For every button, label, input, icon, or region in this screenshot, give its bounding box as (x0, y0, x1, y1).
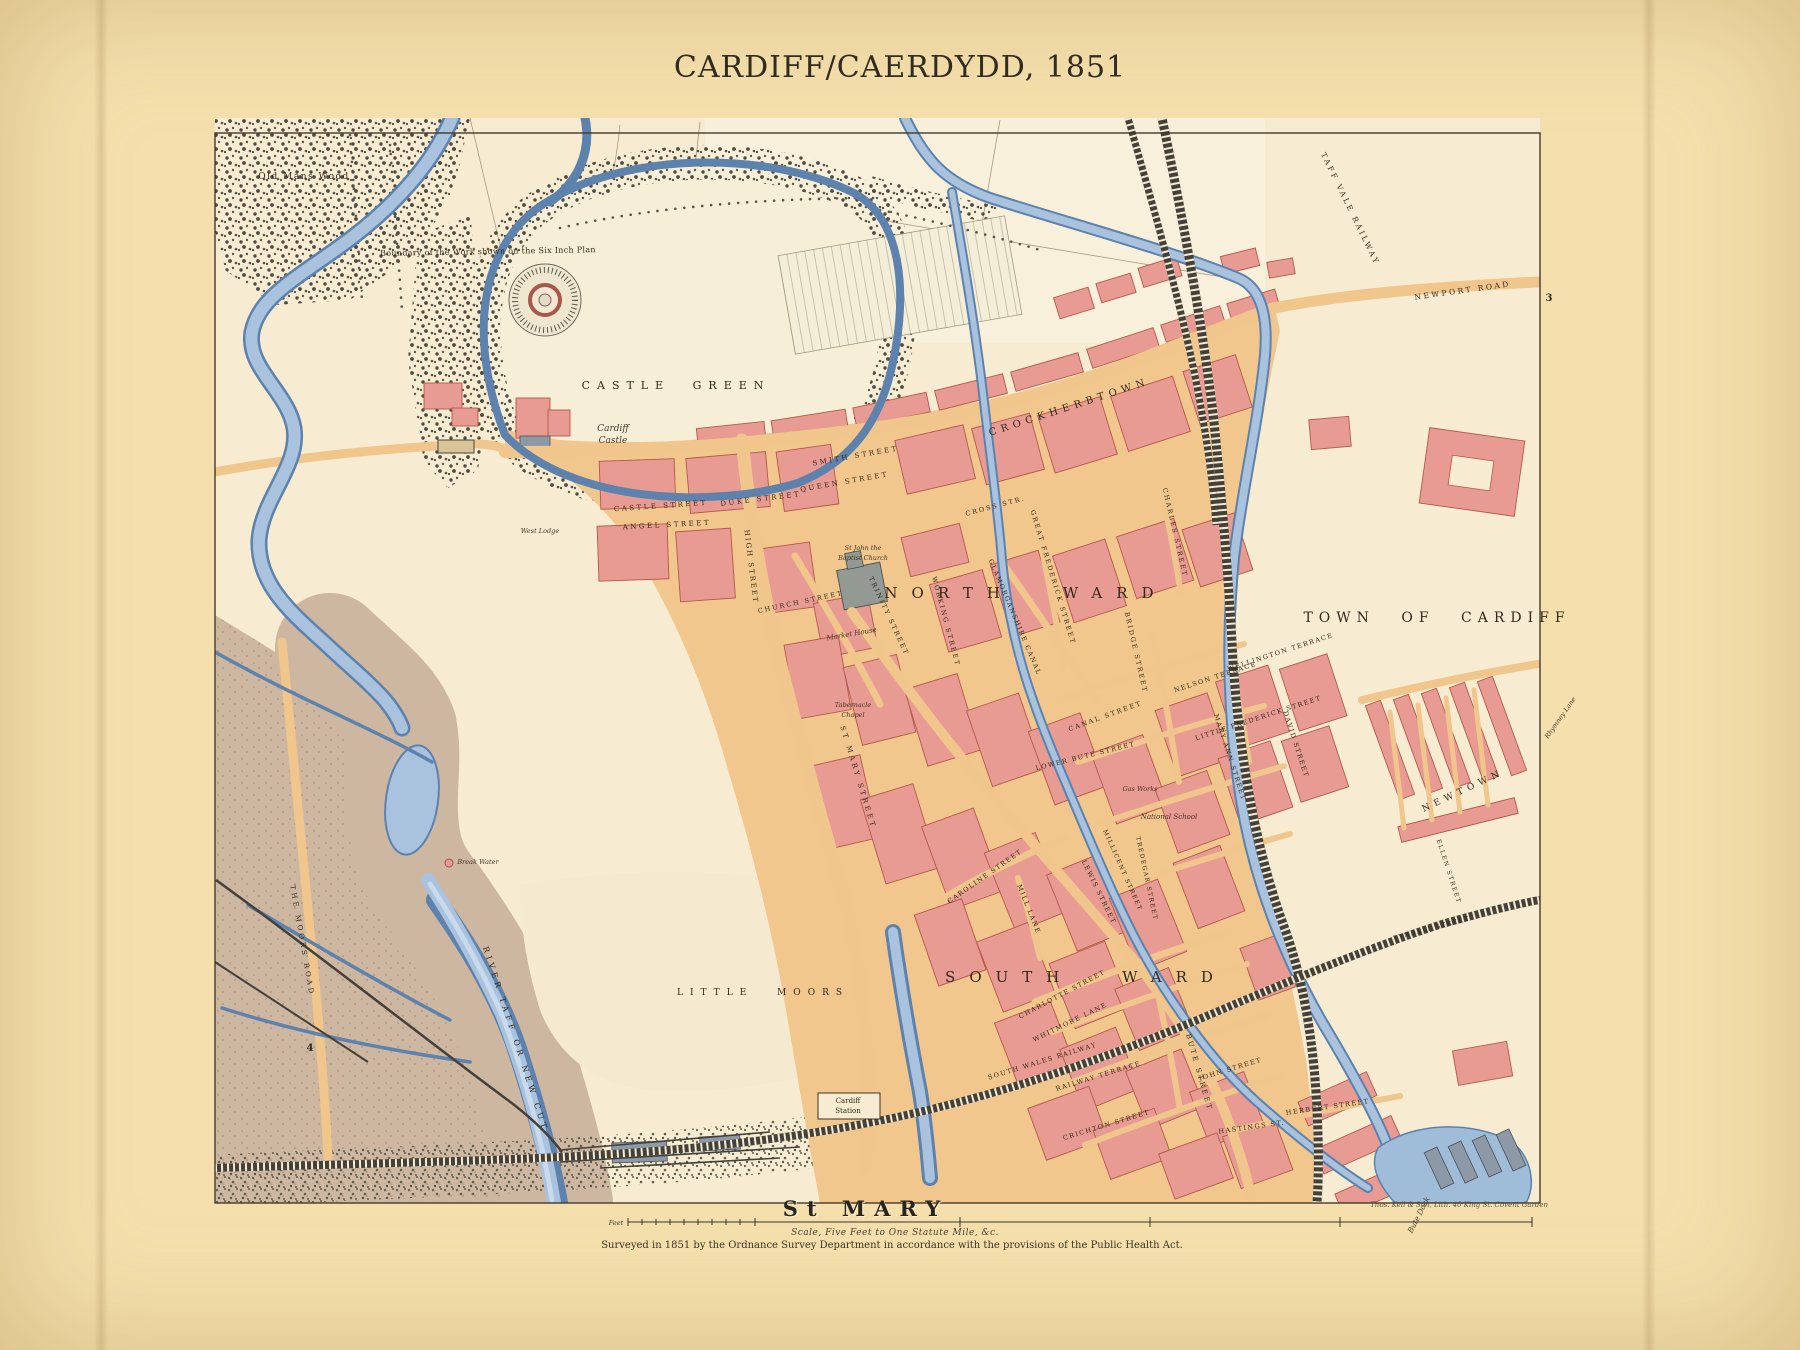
parish-title: St MARY (666, 1196, 1066, 1221)
sheet-number-3: 3 (1546, 293, 1553, 304)
little-moors-label: LITTLE MOORS (677, 988, 849, 998)
cardiff-castle-label-1: Cardiff (597, 424, 630, 434)
break-water-marker (445, 859, 453, 867)
st-john-church-label-2: Baptist Church (837, 554, 888, 562)
cardiff-castle-label-2: Castle (599, 436, 628, 446)
west-lodge-label: West Lodge (521, 527, 560, 535)
rhymney-lane-label: Rhymney Lane (1542, 695, 1577, 741)
tabernacle-chapel-label-2: Chapel (841, 711, 864, 719)
castle-keep (509, 264, 581, 336)
taff-bridge (438, 440, 474, 453)
cardiff-station-label-1: Cardiff (836, 1097, 862, 1105)
town-of-cardiff-label: TOWN OF CARDIFF (1303, 610, 1570, 626)
castle-green-label: CASTLE GREEN (582, 379, 771, 392)
tabernacle-chapel-label-1: Tabernacle (835, 701, 872, 709)
break-water-label: Break Water (456, 858, 499, 866)
map-content (215, 118, 1540, 1216)
historic-map-canvas: Old Mans WoodBoundary of the Work shown … (0, 0, 1800, 1350)
gas-works-label: Gas Works (1122, 785, 1158, 793)
sheet-number-4: 4 (307, 1043, 314, 1054)
lithographer-credit: Thos. Kell & Son, Lith. 40 King St. Cove… (1330, 1201, 1548, 1209)
scale-caption: Scale, Five Feet to One Statute Mile, &c… (695, 1228, 1095, 1238)
map-sheet-page: CARDIFF/CAERDYDD, 1851 (0, 0, 1800, 1350)
north-ward-label: NORTH WARD (884, 584, 1167, 602)
survey-note: Surveyed in 1851 by the Ordnance Survey … (592, 1240, 1192, 1251)
scale-feet-label: Feet (608, 1219, 624, 1227)
old-mans-wood-label: Old Mans Wood (258, 172, 349, 182)
cardiff-station-label-2: Station (835, 1107, 861, 1115)
st-john-church-label-1: St John the (845, 544, 882, 552)
national-school-label: National School (1140, 813, 1198, 821)
